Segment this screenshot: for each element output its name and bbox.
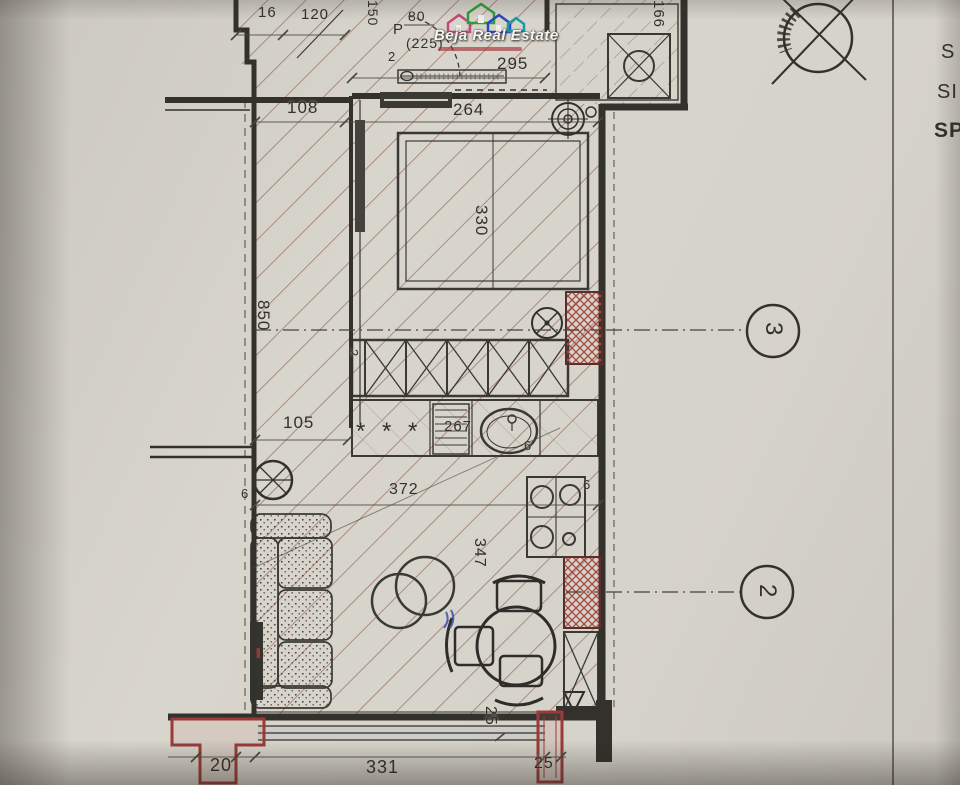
edge-text-1: S <box>941 42 955 62</box>
edge-text-3: SP <box>934 120 960 141</box>
north-symbol <box>772 0 866 84</box>
sofa <box>251 514 332 708</box>
dim-20: 20 <box>210 756 232 774</box>
edge-text-2: SI <box>937 82 958 102</box>
dim-80: 80 <box>408 9 426 23</box>
dim-25-vert: 25 <box>482 706 498 726</box>
dim-2-kitchen: 2 <box>347 349 360 357</box>
hall-window-bar <box>380 92 452 108</box>
dim-16: 16 <box>258 5 277 20</box>
burner-stars: * * * <box>356 420 422 444</box>
dim-295: 295 <box>497 55 528 72</box>
watermark-logo-text: Beja Real Estate <box>434 27 559 44</box>
dim-6-sink: 6 <box>524 439 532 452</box>
dim-850: 850 <box>255 300 272 331</box>
sliding-door-panel <box>355 120 365 232</box>
dim-330: 330 <box>473 205 490 236</box>
logo-tagline-bar <box>438 47 522 51</box>
radiator-upper <box>566 292 602 364</box>
dim-105: 105 <box>283 414 314 431</box>
dim-6-wall: 6 <box>241 487 249 500</box>
dim-264: 264 <box>453 101 484 118</box>
blueprint-photo: 16 120 150 80 P (225) 2 295 166 108 264 … <box>0 0 960 785</box>
left-wall-stub <box>150 447 252 457</box>
dim-267: 267 <box>444 419 472 434</box>
dim-347: 347 <box>471 538 487 568</box>
dim-6-stove: 6 <box>583 478 591 491</box>
dim-108: 108 <box>287 99 318 116</box>
dim-372: 372 <box>389 482 419 498</box>
dim-120: 120 <box>301 7 329 22</box>
dim-25-col: 25 <box>534 756 554 772</box>
dim-150: 150 <box>366 0 380 26</box>
dim-166: 166 <box>651 0 666 28</box>
grid-marker-3: 3 <box>761 322 785 336</box>
dim-331: 331 <box>366 758 399 776</box>
dim-2-door: 2 <box>388 50 396 63</box>
door-label-p: P <box>393 22 404 37</box>
grid-marker-2: 2 <box>755 584 779 598</box>
